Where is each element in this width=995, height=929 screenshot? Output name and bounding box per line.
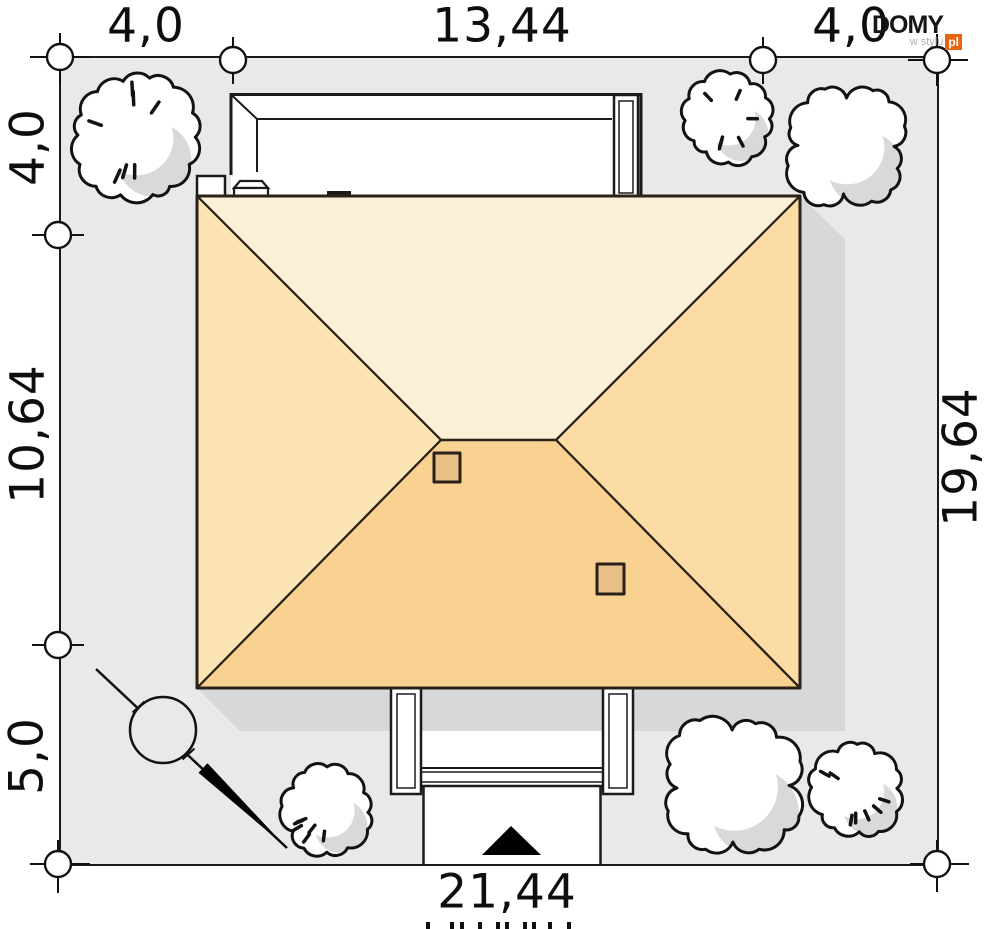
terrace-pillar xyxy=(614,95,638,196)
dim-label-left-mid: 10,64 xyxy=(1,364,56,504)
terrace xyxy=(197,94,641,196)
site-plan: 4,0 13,44 4,0 4,0 10,64 5,0 19,64 21,44 … xyxy=(0,0,995,929)
dimension-marker-circle xyxy=(45,632,71,658)
chimney-icon xyxy=(434,453,460,482)
cropped-text-marks xyxy=(426,922,571,929)
entrance-pillar-left xyxy=(391,688,421,794)
brand-logo: DOMY w stylu pl xyxy=(872,13,990,50)
dim-label-top-left: 4,0 xyxy=(107,0,185,54)
bush-icon xyxy=(280,764,372,857)
dim-label-bottom: 21,44 xyxy=(437,865,577,920)
dimension-marker-circle xyxy=(45,222,71,248)
bush-icon xyxy=(71,73,200,203)
dimension-marker-circle xyxy=(45,851,71,877)
dimension-marker-circle xyxy=(750,47,776,73)
dim-label-top-mid: 13,44 xyxy=(432,0,572,54)
dim-label-left-top: 4,0 xyxy=(1,108,56,186)
dim-label-left-bottom: 5,0 xyxy=(0,717,55,795)
dim-label-right: 19,64 xyxy=(934,387,989,527)
dimension-marker-circle xyxy=(220,47,246,73)
equipment-box xyxy=(234,181,268,196)
entry-step-block xyxy=(197,176,225,196)
chimney-icon xyxy=(597,564,624,594)
tree-icon xyxy=(787,87,906,206)
entrance-pillar-right xyxy=(603,688,633,794)
bush-icon xyxy=(809,742,903,836)
logo-tagline: w stylu xyxy=(910,36,944,48)
site-plan-drawing xyxy=(0,0,995,929)
logo-tld-badge: pl xyxy=(945,34,962,50)
roof xyxy=(197,196,800,688)
dimension-marker-circle xyxy=(924,47,950,73)
dimension-marker-circle xyxy=(47,44,73,70)
dimension-marker-circle xyxy=(924,851,950,877)
tree-icon xyxy=(666,716,803,856)
